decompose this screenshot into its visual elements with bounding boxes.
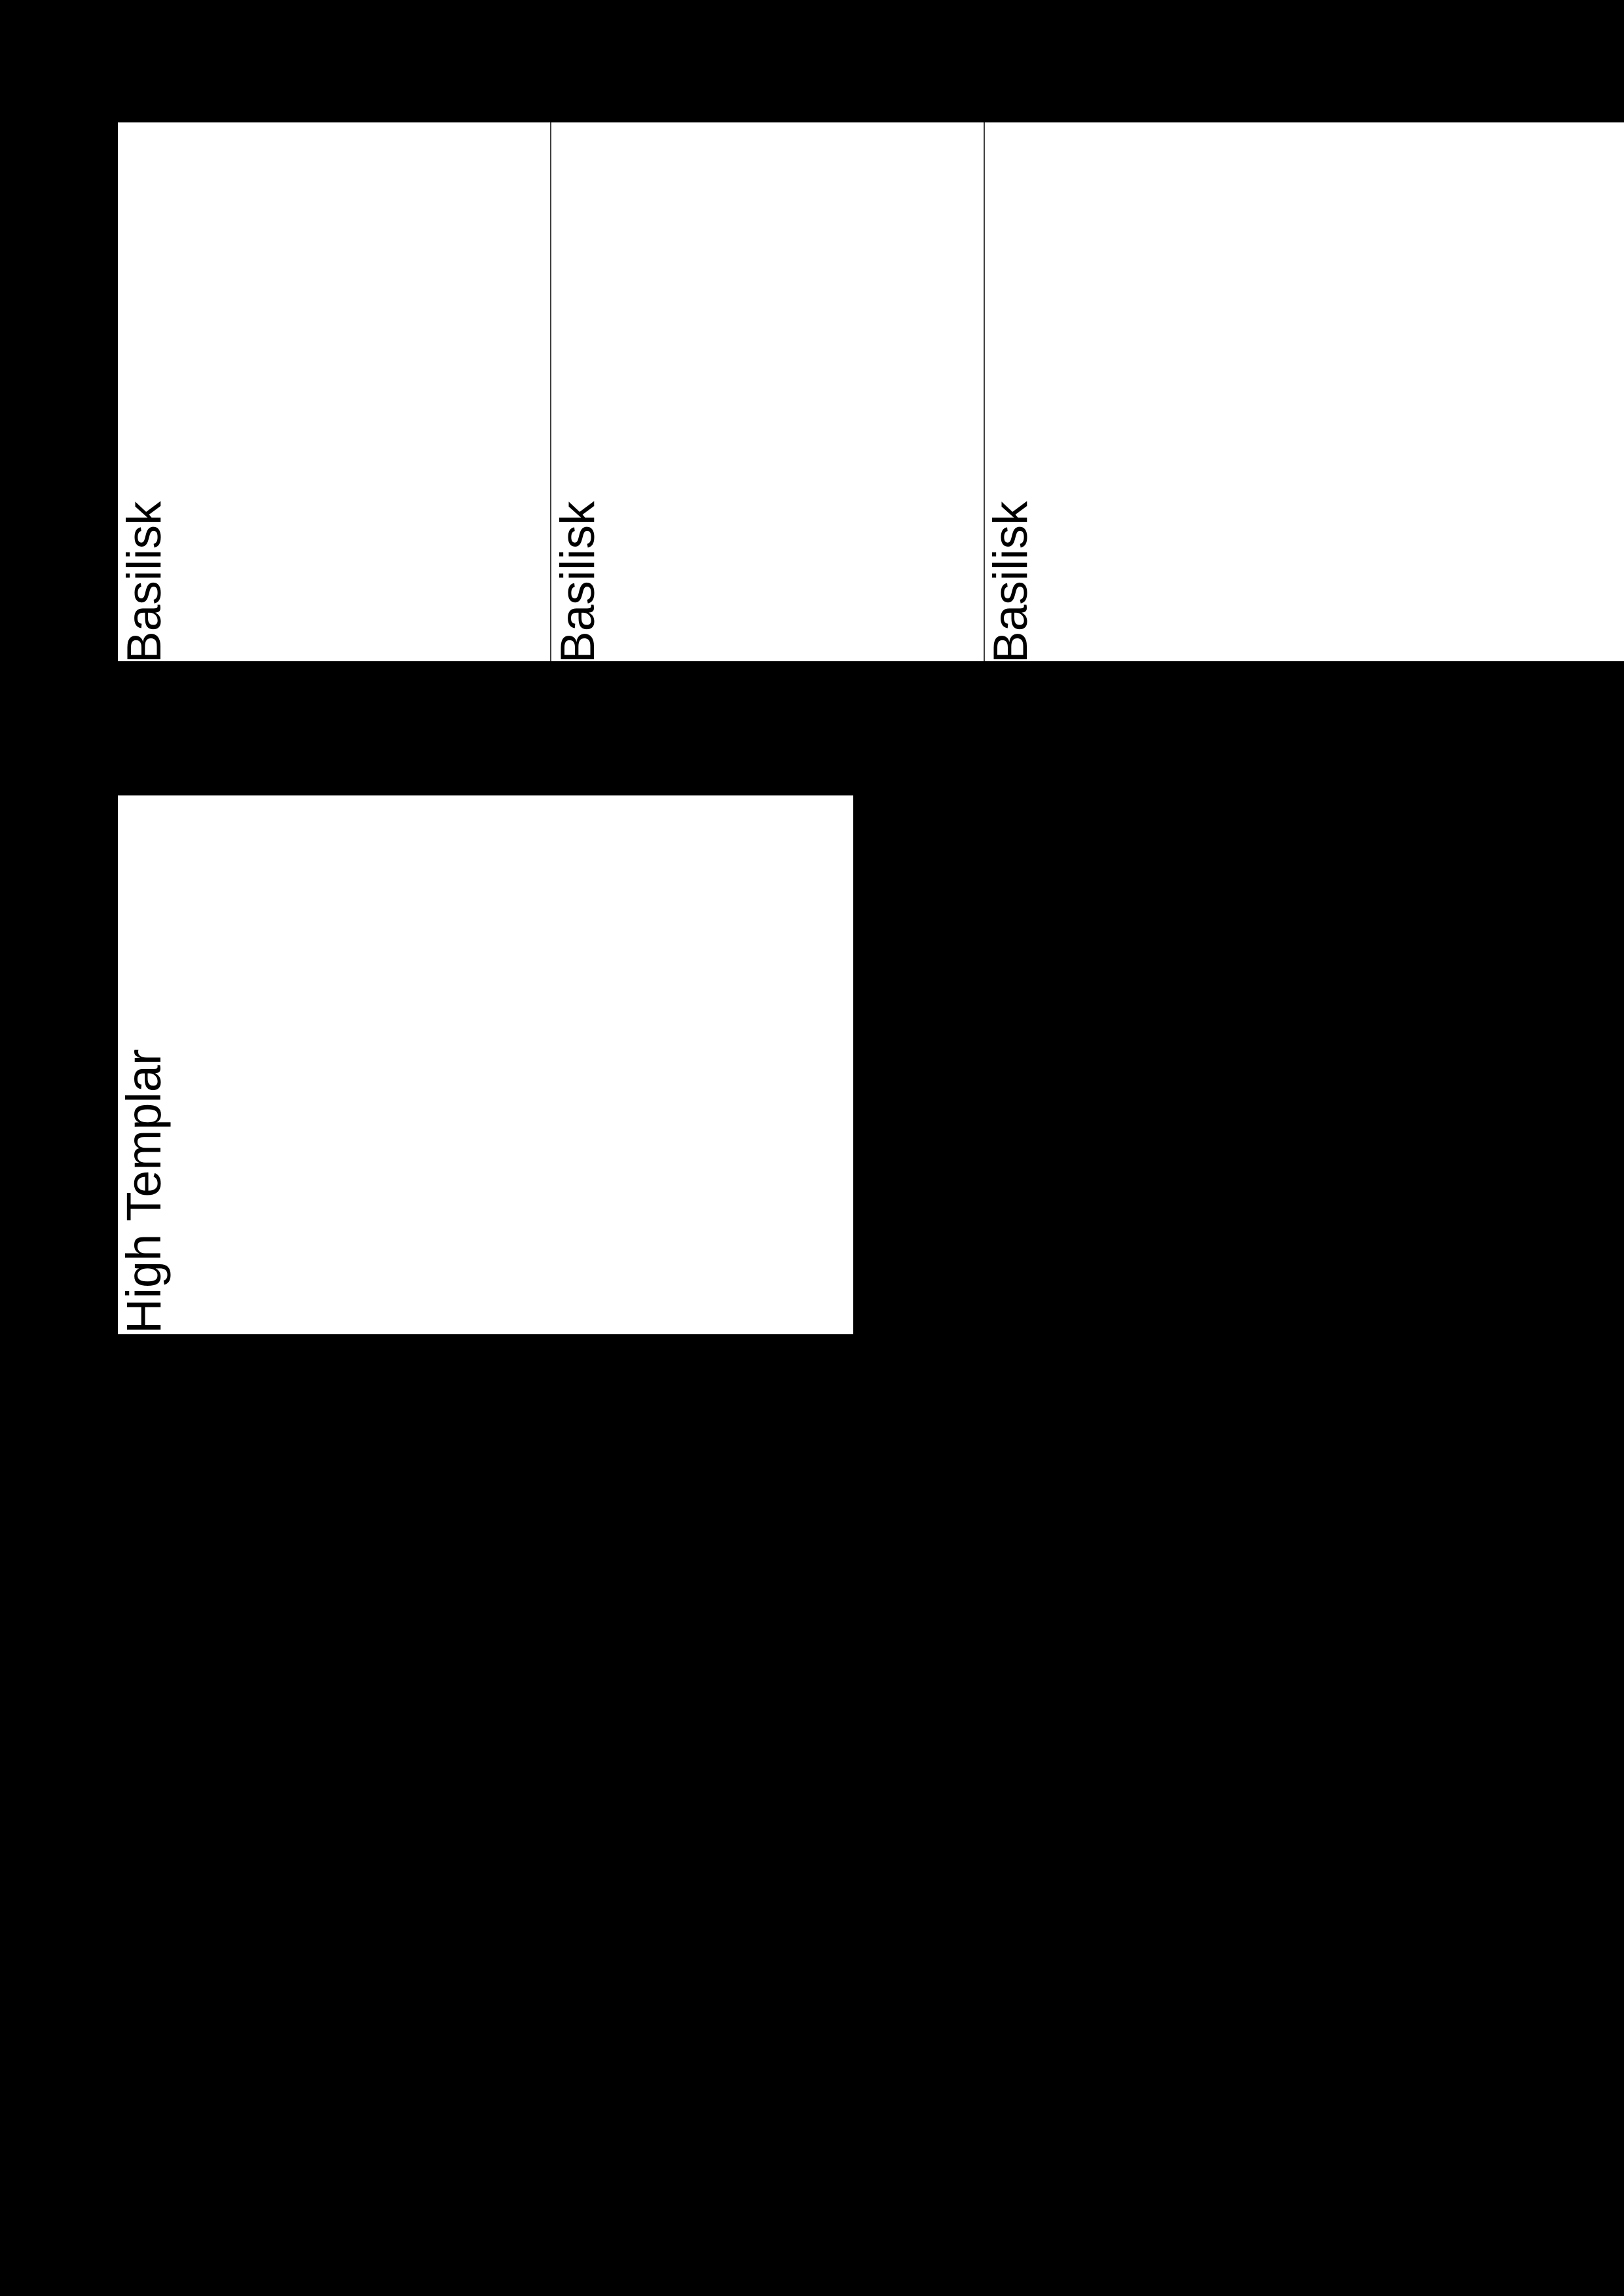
svg-text:Basilisk: Basilisk bbox=[551, 501, 604, 663]
svg-text:High Templar: High Templar bbox=[117, 1049, 171, 1334]
svg-text:Basilisk: Basilisk bbox=[984, 501, 1037, 663]
svg-text:Basilisk: Basilisk bbox=[118, 501, 171, 663]
